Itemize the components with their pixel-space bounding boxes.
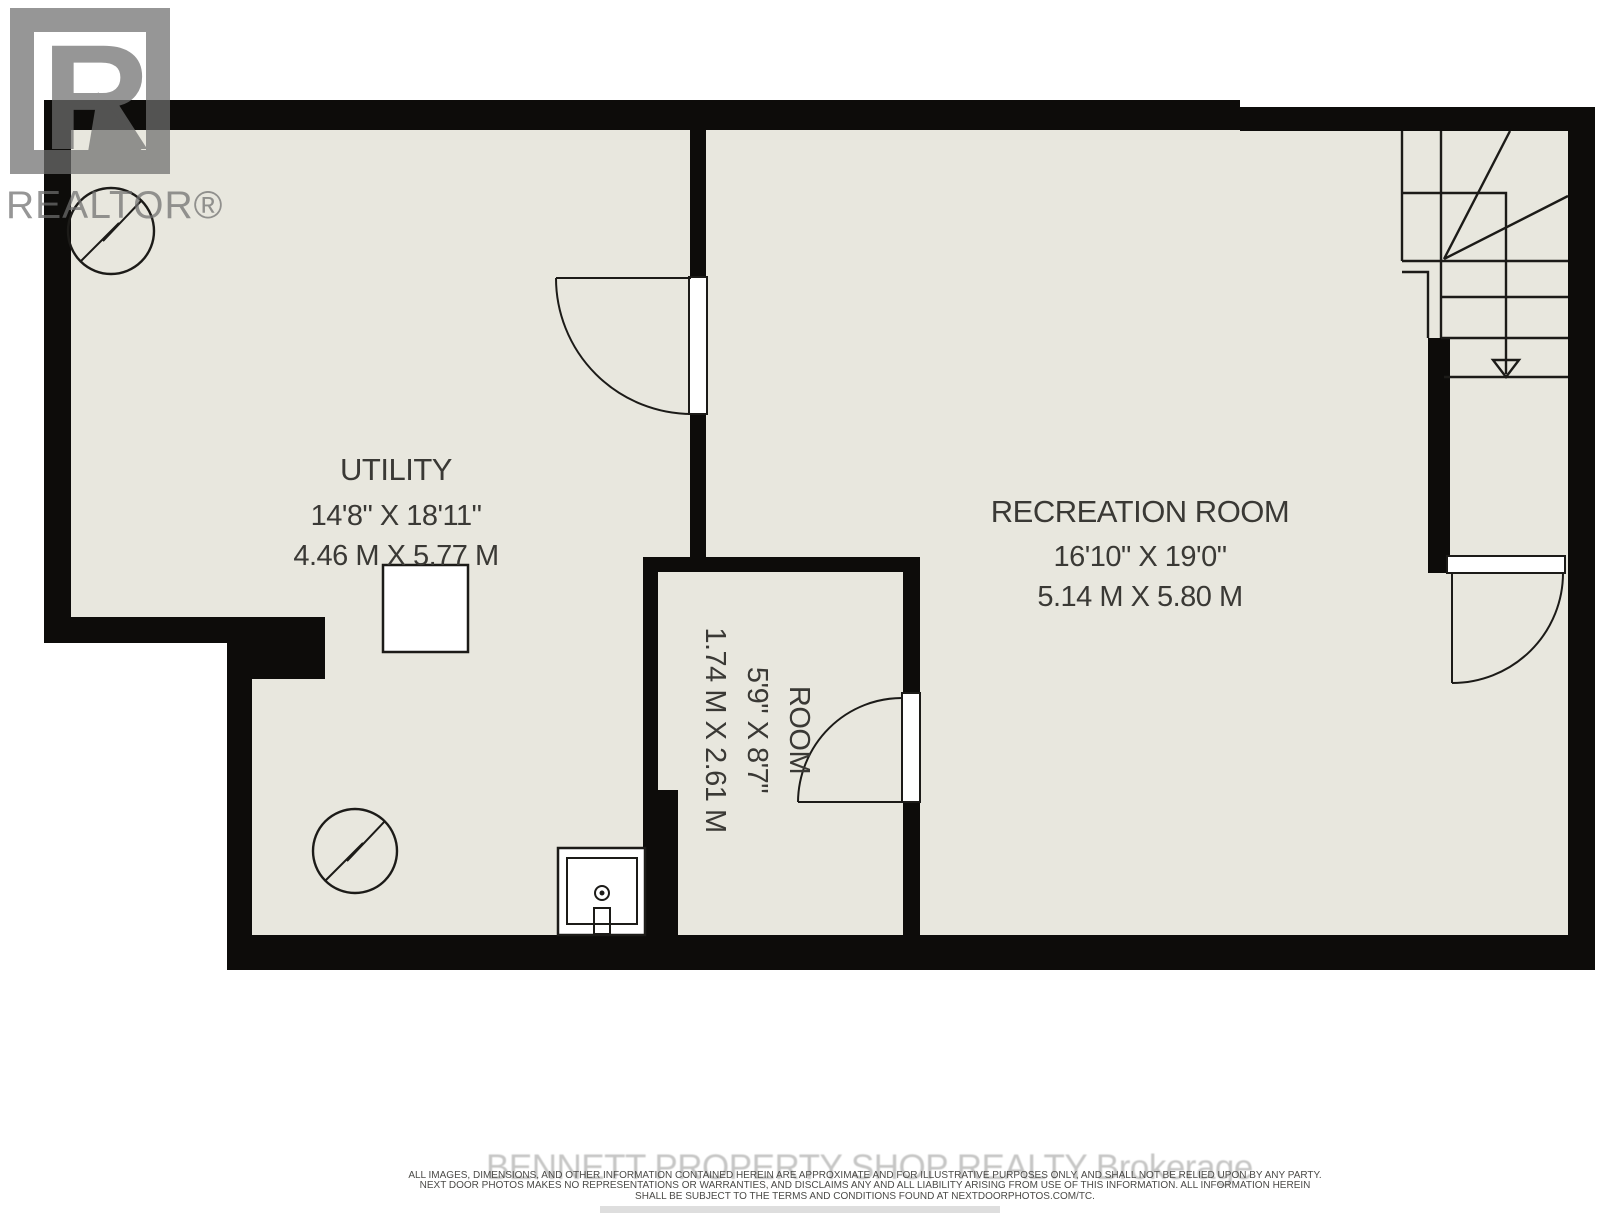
disclaimer: ALL IMAGES, DIMENSIONS, AND OTHER INFORM… [230,1171,1500,1202]
wall-jog-horizontal [44,617,325,643]
wall-small-room-left-lower [643,790,678,935]
outside-area-bottom-left [0,643,227,1213]
sink-drain-center [600,891,605,896]
recreation-room-label: RECREATION ROOM [965,494,1315,530]
wall-small-room-top [643,557,920,572]
floorplan-page: { "title": "Basement floor plan", "rooms… [0,0,1600,1213]
utility-room-imperial-dim: 14'8" X 18'11" [246,500,546,533]
wall-top-left-segment [44,100,1240,130]
small-room-label-block: ROOM 5'9" X 8'7" 1.74 M X 2.61 M [684,580,820,880]
wall-bottom [227,935,1595,970]
recreation-room-imperial-dim: 16'10" X 19'0" [990,541,1290,574]
disclaimer-line: SHALL BE SUBJECT TO THE TERMS AND CONDIT… [230,1192,1500,1202]
outside-strip-top-right [1240,100,1595,107]
small-room-door-opening [902,693,920,802]
wall-top-right-segment [1240,107,1595,131]
wall-right [1568,107,1595,970]
wall-divider-upper [690,130,706,277]
utility-door-opening [689,277,707,414]
laundry-sink-icon [558,848,645,935]
wall-stair-landing-left [1428,338,1450,573]
realtor-logo-label: REALTOR® [6,184,223,227]
wall-divider-lower [690,414,706,557]
cutoff-watermark-smear [600,1206,1000,1213]
wall-small-room-left-upper [643,572,658,790]
furnace-box [383,565,468,652]
wall-small-room-right-lower [903,802,920,935]
small-room-label: ROOM [778,580,820,880]
wall-small-room-right-upper [903,572,920,693]
small-room-metric-dim: 1.74 M X 2.61 M [694,580,736,880]
small-room-imperial-dim: 5'9" X 8'7" [736,580,778,880]
stairs-door-opening [1447,556,1565,573]
recreation-room-metric-dim: 5.14 M X 5.80 M [990,581,1290,614]
wall-left [44,100,71,643]
utility-room-metric-dim: 4.46 M X 5.77 M [246,540,546,573]
utility-room-label: UTILITY [271,452,521,488]
wall-jog-vertical [227,643,252,970]
